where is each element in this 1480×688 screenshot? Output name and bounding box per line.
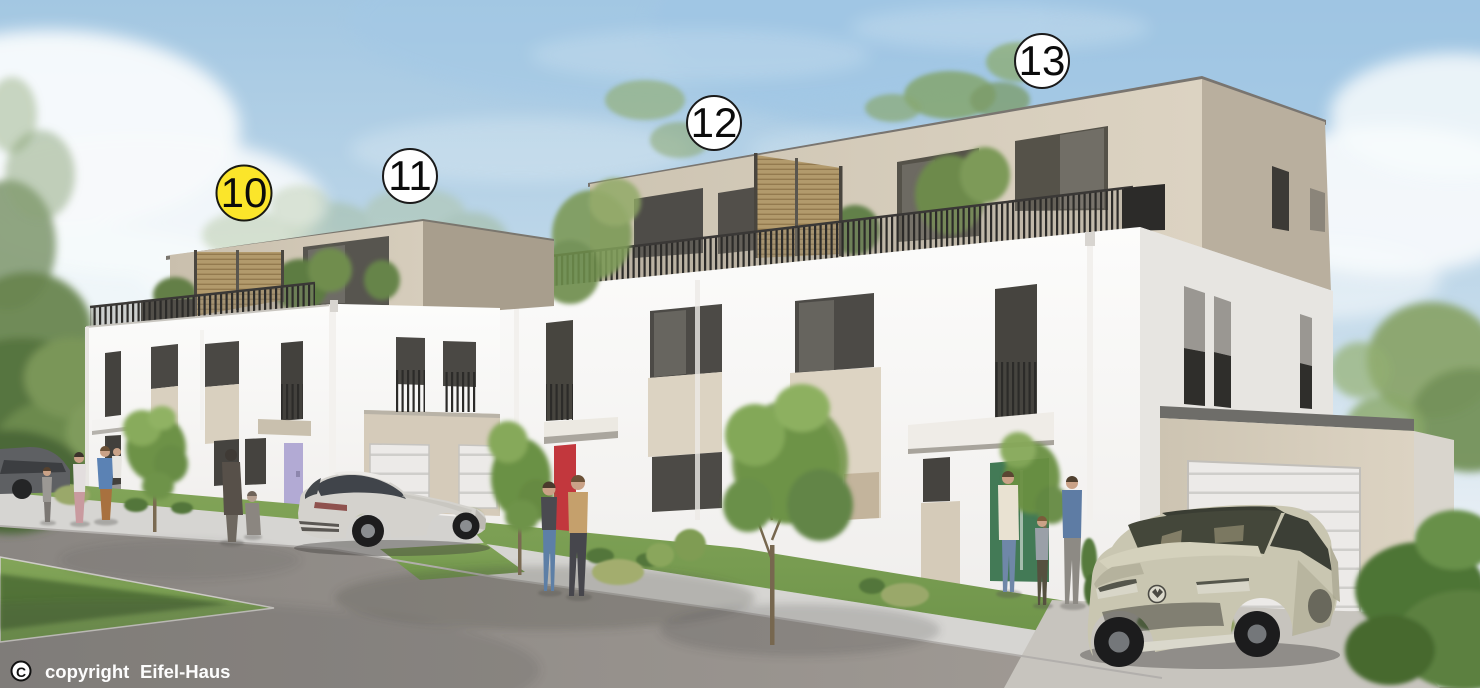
svg-text:copyright: copyright <box>45 661 129 682</box>
svg-text:10: 10 <box>221 169 268 216</box>
svg-text:11: 11 <box>388 152 432 199</box>
svg-text:C: C <box>16 664 26 680</box>
svg-text:Eifel-Haus: Eifel-Haus <box>140 661 230 682</box>
svg-text:12: 12 <box>691 99 738 146</box>
svg-text:13: 13 <box>1019 37 1066 84</box>
